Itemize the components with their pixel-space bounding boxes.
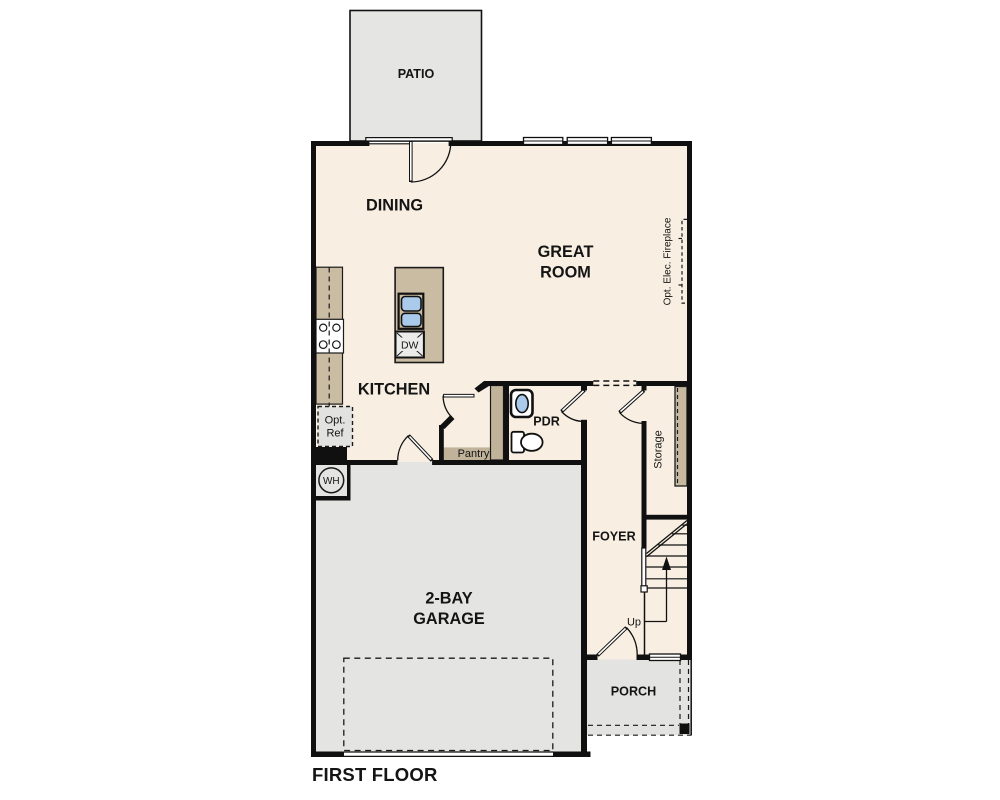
svg-text:Up: Up (627, 617, 641, 629)
svg-text:Pantry: Pantry (458, 448, 490, 460)
svg-text:Opt.: Opt. (325, 415, 346, 427)
svg-text:Opt. Elec. Fireplace: Opt. Elec. Fireplace (663, 217, 674, 305)
svg-text:ROOM: ROOM (540, 264, 591, 282)
svg-text:FIRST FLOOR: FIRST FLOOR (312, 764, 438, 785)
svg-text:KITCHEN: KITCHEN (358, 381, 430, 399)
svg-text:DINING: DINING (366, 197, 423, 215)
svg-text:WH: WH (323, 476, 340, 487)
svg-text:PATIO: PATIO (398, 67, 435, 81)
svg-text:2-BAY: 2-BAY (425, 590, 472, 608)
svg-text:GREAT: GREAT (538, 243, 594, 261)
svg-text:DW: DW (401, 339, 419, 351)
svg-text:PDR: PDR (533, 414, 560, 428)
svg-text:GARAGE: GARAGE (413, 610, 485, 628)
svg-text:PORCH: PORCH (611, 685, 656, 699)
svg-text:FOYER: FOYER (592, 529, 635, 543)
svg-text:Ref: Ref (326, 428, 344, 440)
svg-text:Storage: Storage (653, 430, 665, 469)
